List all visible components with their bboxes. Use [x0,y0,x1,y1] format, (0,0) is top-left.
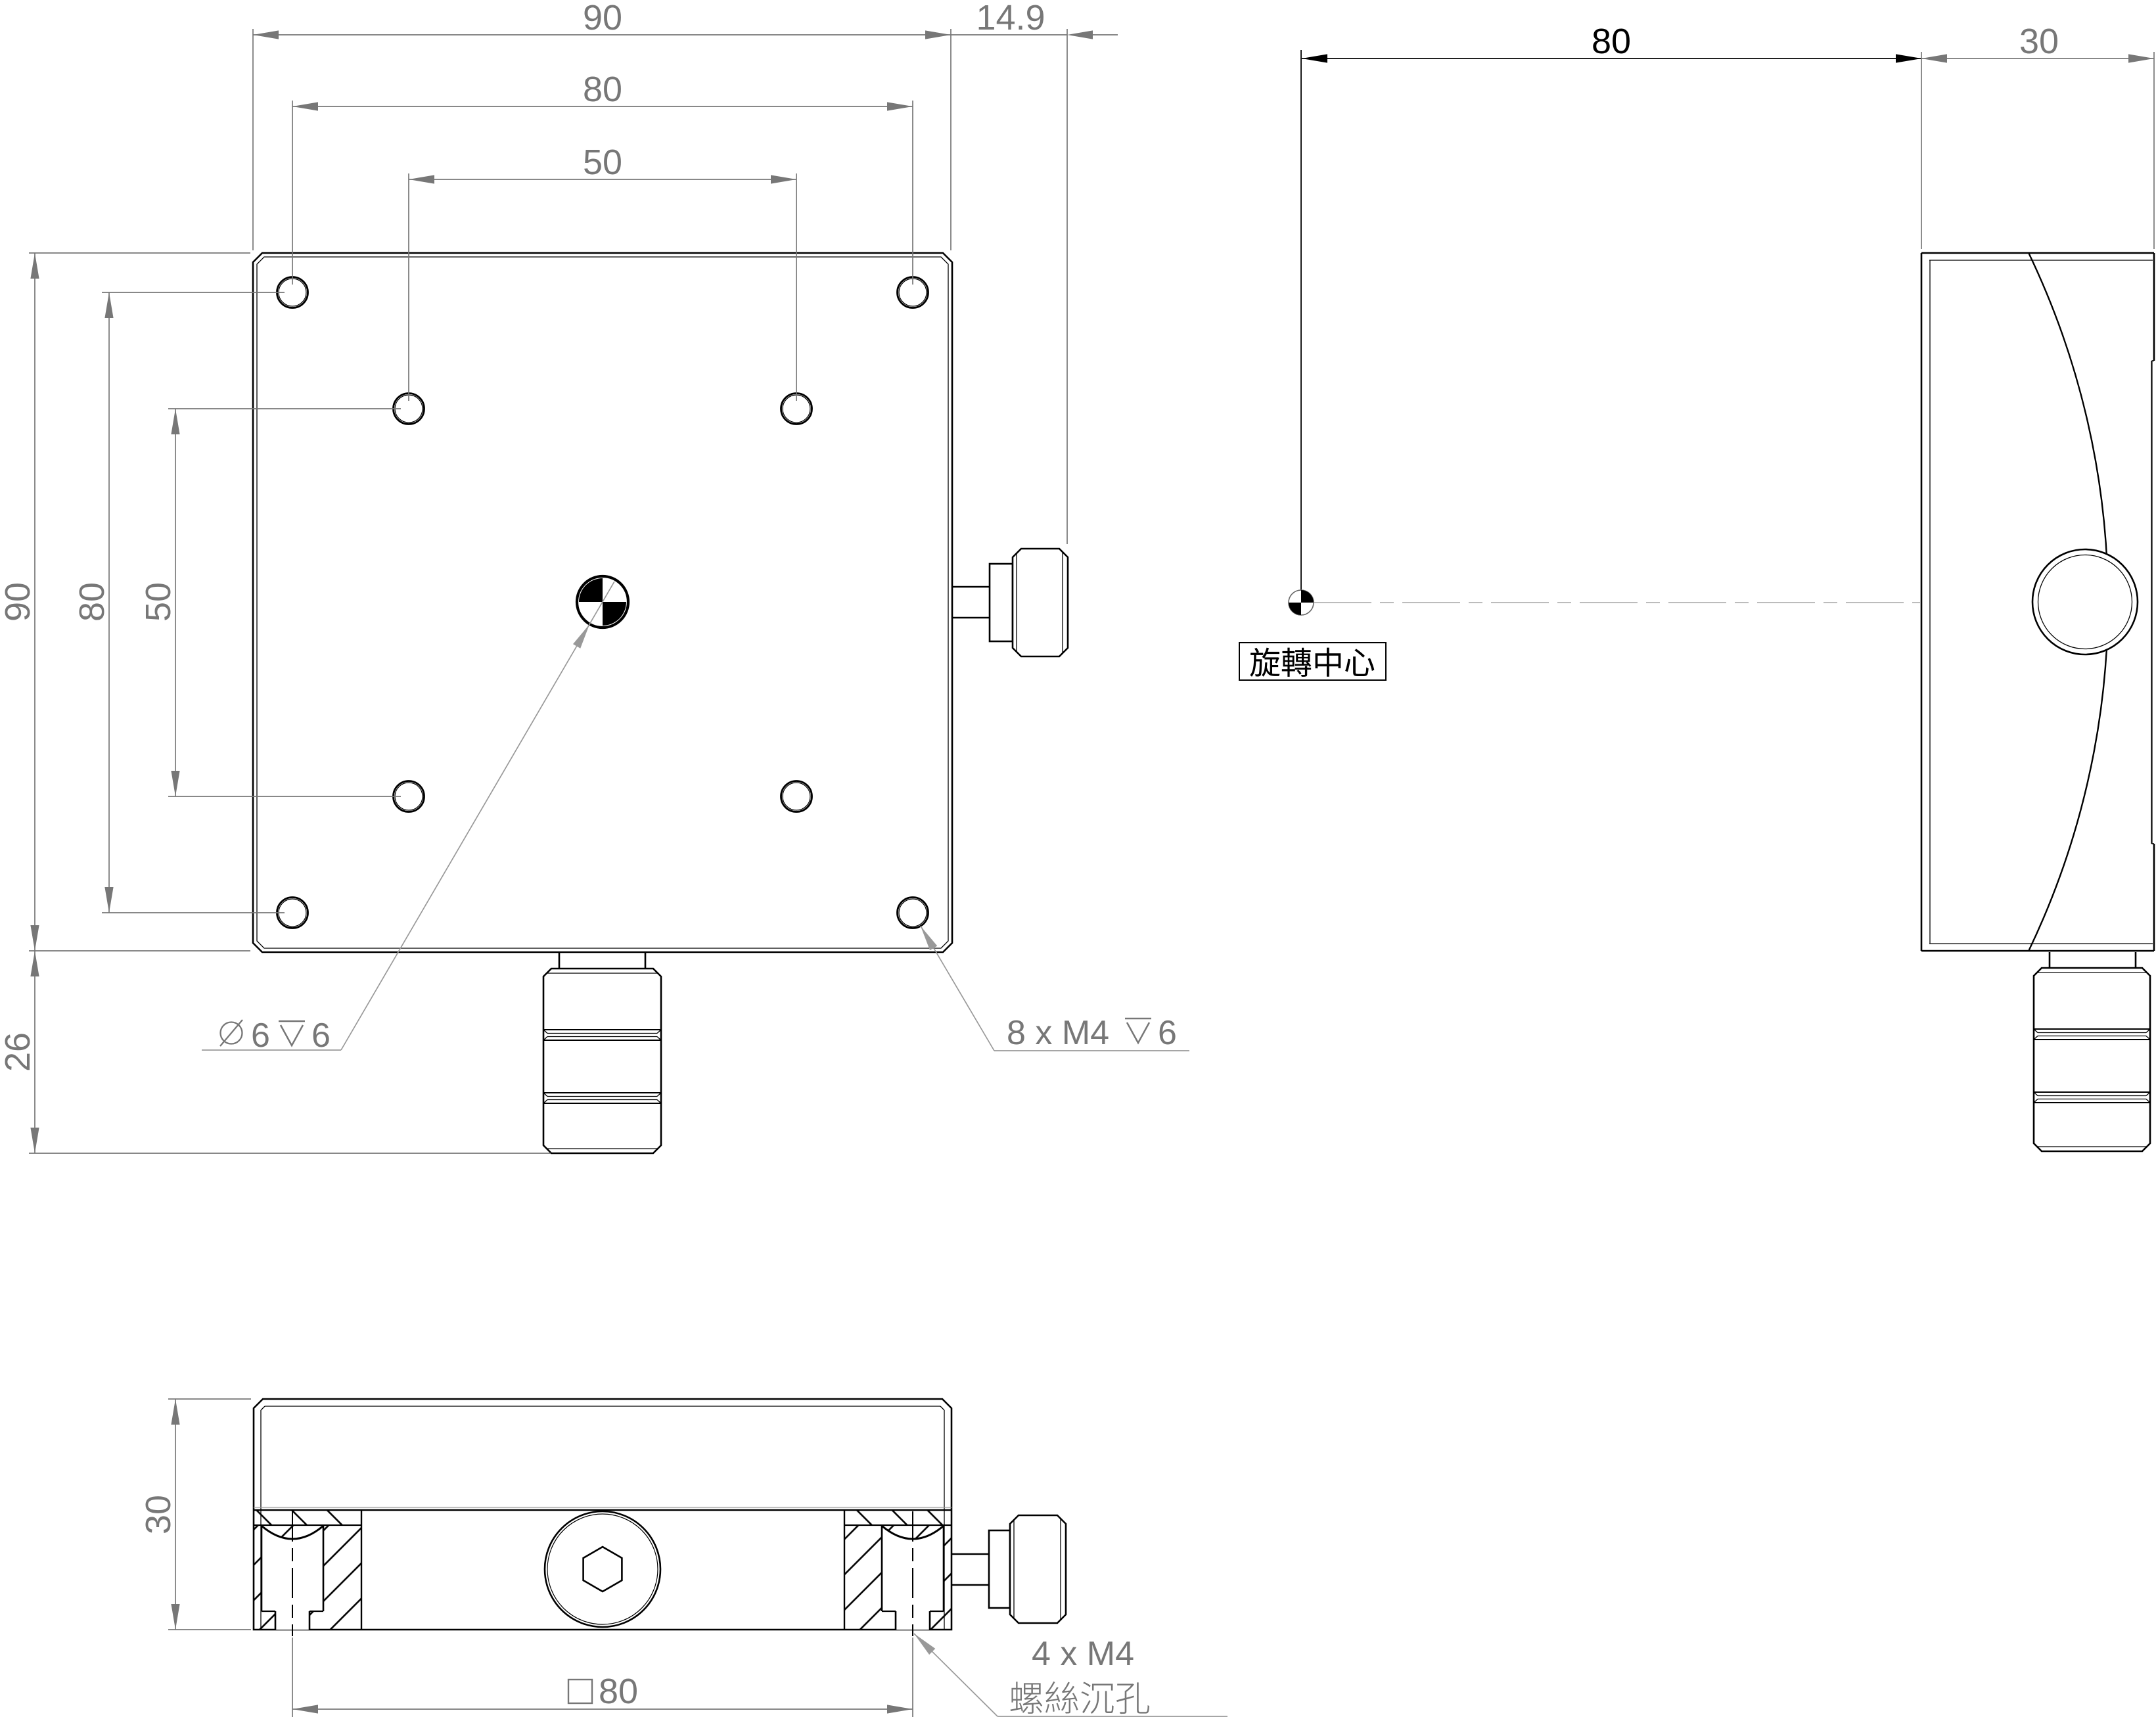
svg-text:80: 80 [583,70,622,109]
svg-text:50: 50 [583,143,622,182]
svg-text:4 x M4: 4 x M4 [1032,1635,1134,1673]
svg-text:6: 6 [251,1017,270,1055]
svg-text:90: 90 [583,0,622,37]
svg-text:26: 26 [0,1032,37,1072]
svg-text:80: 80 [599,1672,638,1711]
svg-text:50: 50 [139,582,178,622]
svg-text:90: 90 [0,582,37,622]
svg-text:30: 30 [2019,22,2059,61]
svg-text:6: 6 [1158,1014,1177,1052]
svg-text:8 x M4: 8 x M4 [1007,1014,1109,1052]
svg-text:14.9: 14.9 [976,0,1045,37]
svg-text:80: 80 [1592,22,1631,61]
svg-text:6: 6 [311,1017,331,1055]
svg-text:80: 80 [72,582,112,622]
svg-text:30: 30 [139,1495,178,1534]
